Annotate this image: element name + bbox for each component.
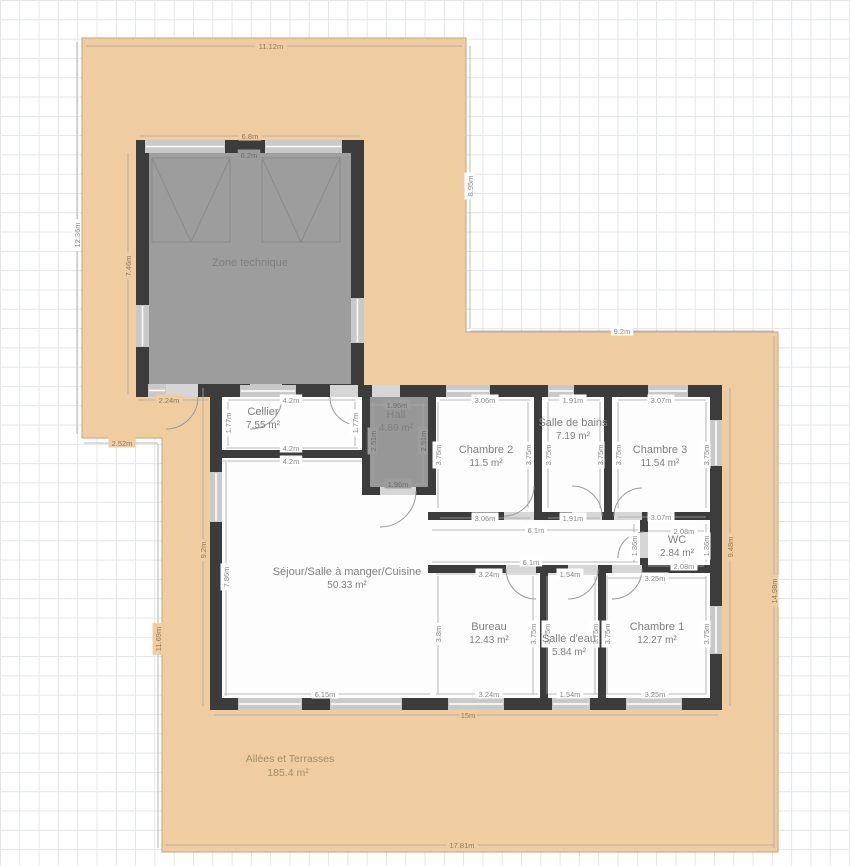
room-label-cellier[interactable]: Cellier [247,406,279,418]
dimension-label: 3.75m [701,621,711,648]
wall[interactable] [351,140,364,397]
dimension-label: 3.06m [472,395,499,405]
dimension-label: 17.81m [446,840,478,850]
room-area-cellier: 7.55 m² [246,420,281,431]
dimension-text: 6.15m [315,690,336,699]
room-label-bureau[interactable]: Bureau [471,621,506,633]
dimension-text: 11.69m [154,627,163,651]
dimension-text: 3.75m [544,445,553,466]
dimension-text: 2.24m [159,396,180,405]
wall[interactable] [210,385,222,710]
dimension-label: 4.2m [280,443,302,453]
room-area-sejour: 50.33 m² [327,580,367,591]
dimension-label: 2.52m [109,438,136,448]
room-area-salle-deau: 5.84 m² [552,647,587,658]
dimension-label: 6.1m [525,525,547,535]
dimension-text: 1.91m [563,396,584,405]
dimension-text: 9.2m [614,327,631,336]
dimension-label: 1.77m [223,410,233,437]
dimension-label: 1.36m [701,533,711,560]
dimension-text: 3.8m [434,626,443,643]
dimension-text: 1.77m [351,413,360,434]
dimension-label: 1.36m [629,533,639,560]
dimension-text: 8.95m [466,176,475,197]
dimension-text: 2.51m [369,431,378,452]
room-area-chambre-3: 11.54 m² [641,458,680,469]
terrace-area-label: 185.4 m² [267,767,309,779]
dimension-text: 15m [461,711,476,720]
dimension-text: 3.07m [651,513,672,522]
dimension-label: 7.86m [221,564,231,591]
dimension-text: 3.75m [524,445,533,466]
dimension-label: 6.15m [312,689,339,699]
dimension-label: 3.75m [528,621,538,648]
room-area-bureau: 12.43 m² [469,635,509,646]
room-label-zone-technique[interactable]: Zone technique [212,257,288,269]
wall[interactable] [534,397,542,520]
room-area-chambre-1: 12.27 m² [637,635,677,646]
dimension-label: 2.24m [156,395,183,405]
dimension-text: 1.96m [388,480,409,489]
dimension-label: 3.75m [602,621,612,648]
dimension-text: 9.48m [726,537,735,558]
dimension-text: 17.81m [449,841,474,850]
dimension-label: 12.36m [72,219,82,251]
dimension-text: 1.54m [560,570,581,579]
dimension-label: 4.2m [280,456,302,466]
dimension-label: 1.77m [350,410,360,437]
dimension-label: 1.54m [557,689,584,699]
dimension-text: 3.07m [651,396,672,405]
dimension-label: 9.2m [198,539,208,561]
dimension-label: 6.2m [238,150,260,160]
dimension-label: 3.75m [613,442,623,469]
dimension-text: 4.2m [283,444,300,453]
dimension-label: 3.25m [642,689,669,699]
dimension-label: 3.8m [433,623,443,645]
room-label-chambre-3[interactable]: Chambre 3 [633,444,687,456]
door-opening[interactable] [330,385,358,397]
room-area-wc: 2.84 m² [660,548,695,559]
dimension-label: 3.06m [472,513,499,523]
room-label-wc[interactable]: WC [668,534,686,546]
dimension-label: 3.24m [476,689,503,699]
dimension-text: 3.24m [479,690,500,699]
dimension-label: 9.2m [611,326,633,336]
dimension-text: 1.54m [560,690,581,699]
dimension-text: 4.2m [283,457,300,466]
dimension-label: 1.96m [385,479,412,489]
wall[interactable] [136,140,149,397]
door-opening[interactable] [614,512,642,520]
dimension-text: 7.46m [124,256,133,277]
dimension-text: 3.75m [434,445,443,466]
dimension-text: 1.36m [702,536,711,557]
door-opening[interactable] [612,565,642,573]
door-opening[interactable] [640,532,648,558]
floorplan-canvas: 11.12m12.36m8.95m9.2m14.98m17.81m11.69m2… [0,0,850,866]
dimension-text: 3.75m [702,445,711,466]
room-label-salle-de-bains[interactable]: Salle de bains [538,417,608,429]
dimension-text: 11.12m [259,42,283,51]
terrace-label: Allées et Terrasses [246,753,335,765]
dimension-text: 3.06m [475,514,496,523]
room-label-salle-deau[interactable]: Salle d'eau [542,633,596,645]
dimension-label: 1.91m [560,395,587,405]
dimension-text: 6.1m [528,526,545,535]
dimension-text: 12.36m [73,222,82,247]
floorplan-drawing: 11.12m12.36m8.95m9.2m14.98m17.81m11.69m2… [0,0,850,866]
dimension-label: 3.07m [648,512,675,522]
room-label-chambre-2[interactable]: Chambre 2 [459,444,513,456]
room-area-salle-de-bains: 7.19 m² [556,431,591,442]
dimension-text: 3.75m [702,624,711,645]
dimension-text: 3.25m [645,690,666,699]
dimension-label: 1.91m [560,513,587,523]
dimension-label: 9.48m [725,534,735,561]
door-opening[interactable] [372,385,400,397]
dimension-text: 6.8m [242,132,259,141]
dimension-text: 3.24m [479,570,500,579]
dimension-label: 11.12m [255,41,287,51]
dimension-text: 3.75m [614,445,623,466]
dimension-text: 6.1m [523,558,540,567]
dimension-text: 4.2m [283,396,300,405]
dimension-text: 3.75m [596,445,605,466]
dimension-label: 2.51m [368,428,378,455]
dimension-text: 1.91m [563,514,584,523]
dimension-label: 14.98m [769,575,779,607]
dimension-label: 3.24m [476,569,503,579]
dimension-label: 3.07m [648,395,675,405]
dimension-label: 6.1m [520,557,542,567]
room-area-chambre-2: 11.5 m² [469,458,503,469]
dimension-label: 3.75m [595,442,605,469]
dimension-text: 3.06m [475,396,496,405]
dimension-text: 1.36m [630,536,639,557]
dimension-label: 8.95m [465,173,475,200]
room-label-chambre-1[interactable]: Chambre 1 [630,621,684,633]
wall[interactable] [604,397,612,520]
dimension-text: 14.98m [770,578,779,603]
dimension-text: 9.2m [199,542,208,559]
dimension-label: 3.25m [642,573,669,583]
dimension-label: 15m [459,710,477,720]
dimension-label: 3.75m [543,442,553,469]
dimension-text: 3.75m [603,624,612,645]
dimension-label: 3.75m [433,442,443,469]
dimension-label: 2.08m [671,561,698,571]
dimension-label: 11.69m [153,623,163,655]
dimension-label: 6.8m [239,131,261,141]
dimension-label: 1.54m [557,569,584,579]
dimension-label: 2.51m [418,428,428,455]
dimension-text: 1.77m [224,413,233,434]
dimension-text: 2.52m [112,439,133,448]
dimension-label: 3.75m [701,442,711,469]
room-label-hall[interactable]: Hall [387,409,406,421]
dimension-label: 3.75m [523,442,533,469]
room-label-sejour[interactable]: Séjour/Salle à manger/Cuisine [273,566,422,578]
dimension-text: 2.08m [674,562,695,571]
dimension-text: 6.2m [241,151,258,160]
dimension-text: 7.86m [222,567,231,588]
dimension-label: 4.2m [280,395,302,405]
dimension-text: 2.51m [419,431,428,452]
dimension-text: 3.75m [529,624,538,645]
dimension-text: 3.25m [645,574,666,583]
room-area-hall: 4.89 m² [379,423,414,434]
dimension-label: 7.46m [123,253,133,280]
